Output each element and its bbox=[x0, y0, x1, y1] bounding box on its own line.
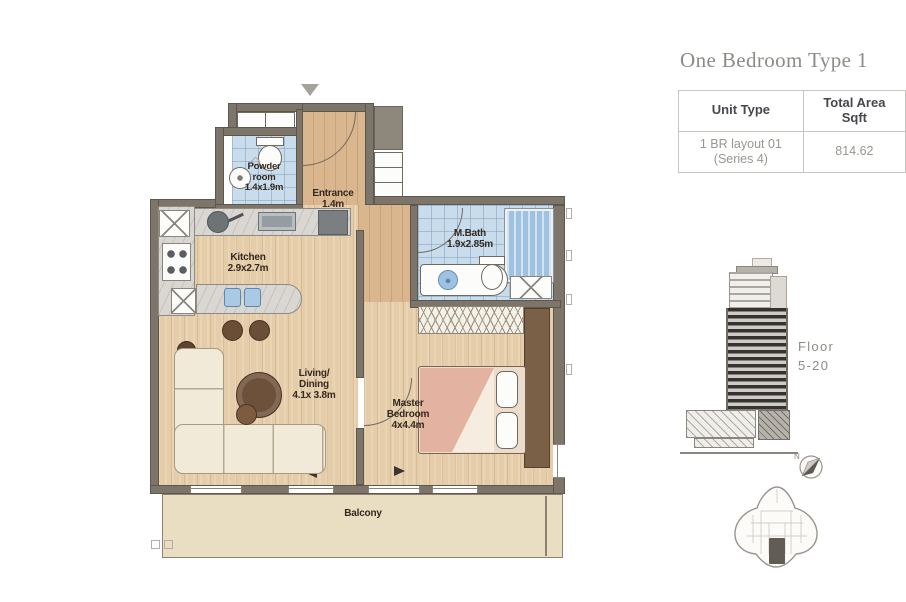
balcony-planter bbox=[164, 540, 173, 549]
wardrobe bbox=[418, 306, 524, 334]
appliance bbox=[159, 210, 190, 237]
shaft-block bbox=[374, 106, 403, 150]
entrance-arrow-icon bbox=[301, 84, 319, 96]
wall-tick bbox=[566, 250, 572, 261]
master-bedroom-label: Master Bedroom 4x4.4m bbox=[370, 398, 446, 432]
floor-range-label: Floor 5-20 bbox=[798, 338, 868, 376]
entrance-dim: 1.4m bbox=[300, 199, 366, 210]
total-area-cell: 814.62 bbox=[803, 131, 905, 172]
kitchen-label: Kitchen 2.9x2.7m bbox=[198, 252, 298, 274]
balcony-label: Balcony bbox=[162, 508, 564, 519]
vanity-sink bbox=[438, 270, 458, 290]
bath-cabinet bbox=[510, 276, 552, 299]
pillow bbox=[496, 371, 518, 408]
wall bbox=[215, 127, 303, 136]
living-dining-label: Living/ Dining 4.1x 3.8m bbox=[266, 368, 362, 402]
wall bbox=[374, 196, 565, 205]
island-sink bbox=[244, 288, 261, 307]
podium bbox=[686, 410, 756, 438]
floor-plan: Powder room 1.4x1.9m Entrance 1.4m Kitch… bbox=[0, 0, 640, 602]
north-label: N bbox=[794, 452, 800, 461]
wall-tick bbox=[566, 294, 572, 305]
sliding-door bbox=[288, 486, 334, 493]
sliding-door bbox=[368, 486, 420, 493]
wall bbox=[356, 428, 364, 485]
kitchen-dim: 2.9x2.7m bbox=[198, 263, 298, 274]
key-plan: N bbox=[723, 443, 838, 583]
mbath-dim: 1.9x2.85m bbox=[420, 239, 520, 250]
wall bbox=[296, 103, 374, 112]
unit-spec-table: Unit Type Total Area Sqft 1 BR layout 01… bbox=[678, 90, 906, 173]
pillow bbox=[496, 412, 518, 449]
island-sink bbox=[224, 288, 241, 307]
balcony-divider bbox=[545, 496, 547, 556]
powder-room-dim: 1.4x1.9m bbox=[226, 183, 302, 194]
wall bbox=[365, 103, 374, 205]
kitchen-sink bbox=[258, 212, 296, 231]
living-dining-dim: 4.1x 3.8m bbox=[266, 390, 362, 401]
sliding-door bbox=[432, 486, 478, 493]
wall-tick bbox=[566, 208, 572, 219]
sliding-door bbox=[190, 486, 242, 493]
mbath-label: M.Bath 1.9x2.85m bbox=[420, 228, 520, 250]
hall-floor bbox=[358, 205, 410, 305]
sofa bbox=[174, 424, 326, 474]
appliance bbox=[171, 288, 196, 314]
stove bbox=[162, 243, 191, 281]
podium-dark bbox=[758, 410, 790, 440]
powder-room-label: Powder room 1.4x1.9m bbox=[226, 162, 302, 194]
col-total-area: Total Area Sqft bbox=[803, 91, 905, 132]
wall bbox=[228, 103, 303, 112]
tower-highlight-floors bbox=[726, 308, 788, 410]
tower-light-floors bbox=[729, 272, 773, 308]
wall bbox=[356, 230, 364, 378]
door-swing-arrow-icon bbox=[394, 466, 405, 476]
utility-shaft bbox=[374, 152, 403, 198]
wall bbox=[410, 205, 418, 308]
page-title: One Bedroom Type 1 bbox=[680, 48, 900, 73]
wall bbox=[215, 127, 224, 212]
closet-column bbox=[524, 308, 550, 468]
toilet-bowl bbox=[481, 264, 503, 290]
keyplan-unit-marker bbox=[769, 538, 785, 564]
bar-stool bbox=[249, 320, 270, 341]
table-row: 1 BR layout 01 (Series 4) 814.62 bbox=[679, 131, 906, 172]
master-bedroom-dim: 4x4.4m bbox=[370, 420, 446, 431]
bar-stool bbox=[222, 320, 243, 341]
brochure-page: Powder room 1.4x1.9m Entrance 1.4m Kitch… bbox=[0, 0, 906, 602]
tower-side-block bbox=[770, 276, 787, 310]
side-table bbox=[236, 404, 257, 425]
wall-tick bbox=[566, 364, 572, 375]
window bbox=[553, 444, 565, 478]
col-unit-type: Unit Type bbox=[679, 91, 804, 132]
oven bbox=[318, 210, 348, 235]
balcony-planter bbox=[151, 540, 160, 549]
cooking-pan bbox=[207, 211, 229, 233]
unit-type-cell: 1 BR layout 01 (Series 4) bbox=[679, 131, 804, 172]
balcony-floor bbox=[162, 494, 563, 558]
entrance-label: Entrance 1.4m bbox=[300, 188, 366, 210]
